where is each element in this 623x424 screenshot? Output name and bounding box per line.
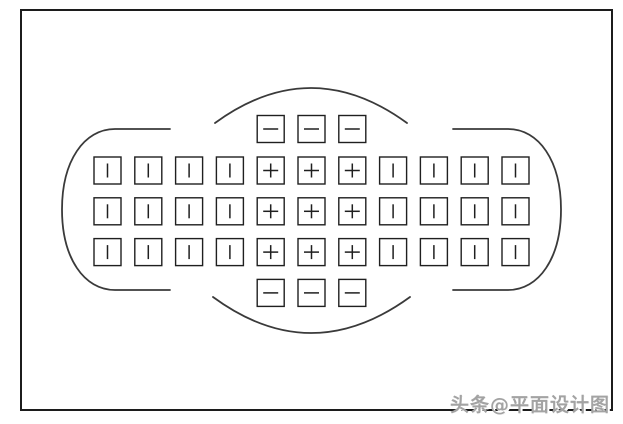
af-point-bar bbox=[461, 157, 488, 184]
af-point-bar bbox=[216, 157, 243, 184]
af-point-diagram-page: 头条@平面设计图 bbox=[0, 0, 623, 424]
af-point-minus bbox=[298, 116, 325, 143]
af-point-bar bbox=[94, 157, 121, 184]
af-point-bar bbox=[502, 198, 529, 225]
af-point-bar bbox=[420, 198, 447, 225]
af-point-plus bbox=[257, 157, 284, 184]
af-point-minus bbox=[339, 116, 366, 143]
af-point-bar bbox=[94, 198, 121, 225]
af-point-bar bbox=[380, 198, 407, 225]
af-point-plus bbox=[257, 239, 284, 266]
af-point-minus bbox=[339, 279, 366, 306]
af-point-plus bbox=[339, 239, 366, 266]
af-point-bar bbox=[135, 157, 162, 184]
af-point-bar bbox=[461, 239, 488, 266]
af-point-bar bbox=[420, 157, 447, 184]
af-point-bar bbox=[216, 239, 243, 266]
watermark: 头条@平面设计图 bbox=[450, 390, 610, 417]
af-point-minus bbox=[257, 279, 284, 306]
af-point-bar bbox=[176, 239, 203, 266]
af-point-plus bbox=[339, 157, 366, 184]
af-point-bar bbox=[502, 157, 529, 184]
af-point-bar bbox=[380, 239, 407, 266]
af-point-bar bbox=[461, 198, 488, 225]
af-point-plus bbox=[298, 157, 325, 184]
af-point-bar bbox=[502, 239, 529, 266]
af-diagram-svg bbox=[0, 0, 623, 424]
af-point-plus bbox=[339, 198, 366, 225]
af-point-bar bbox=[94, 239, 121, 266]
af-point-bar bbox=[135, 198, 162, 225]
af-point-bar bbox=[420, 239, 447, 266]
af-point-bar bbox=[216, 198, 243, 225]
af-point-plus bbox=[298, 239, 325, 266]
af-point-bar bbox=[176, 157, 203, 184]
af-point-bar bbox=[176, 198, 203, 225]
af-point-plus bbox=[298, 198, 325, 225]
af-point-bar bbox=[135, 239, 162, 266]
af-point-plus bbox=[257, 198, 284, 225]
af-point-bar bbox=[380, 157, 407, 184]
af-point-minus bbox=[257, 116, 284, 143]
af-point-minus bbox=[298, 279, 325, 306]
